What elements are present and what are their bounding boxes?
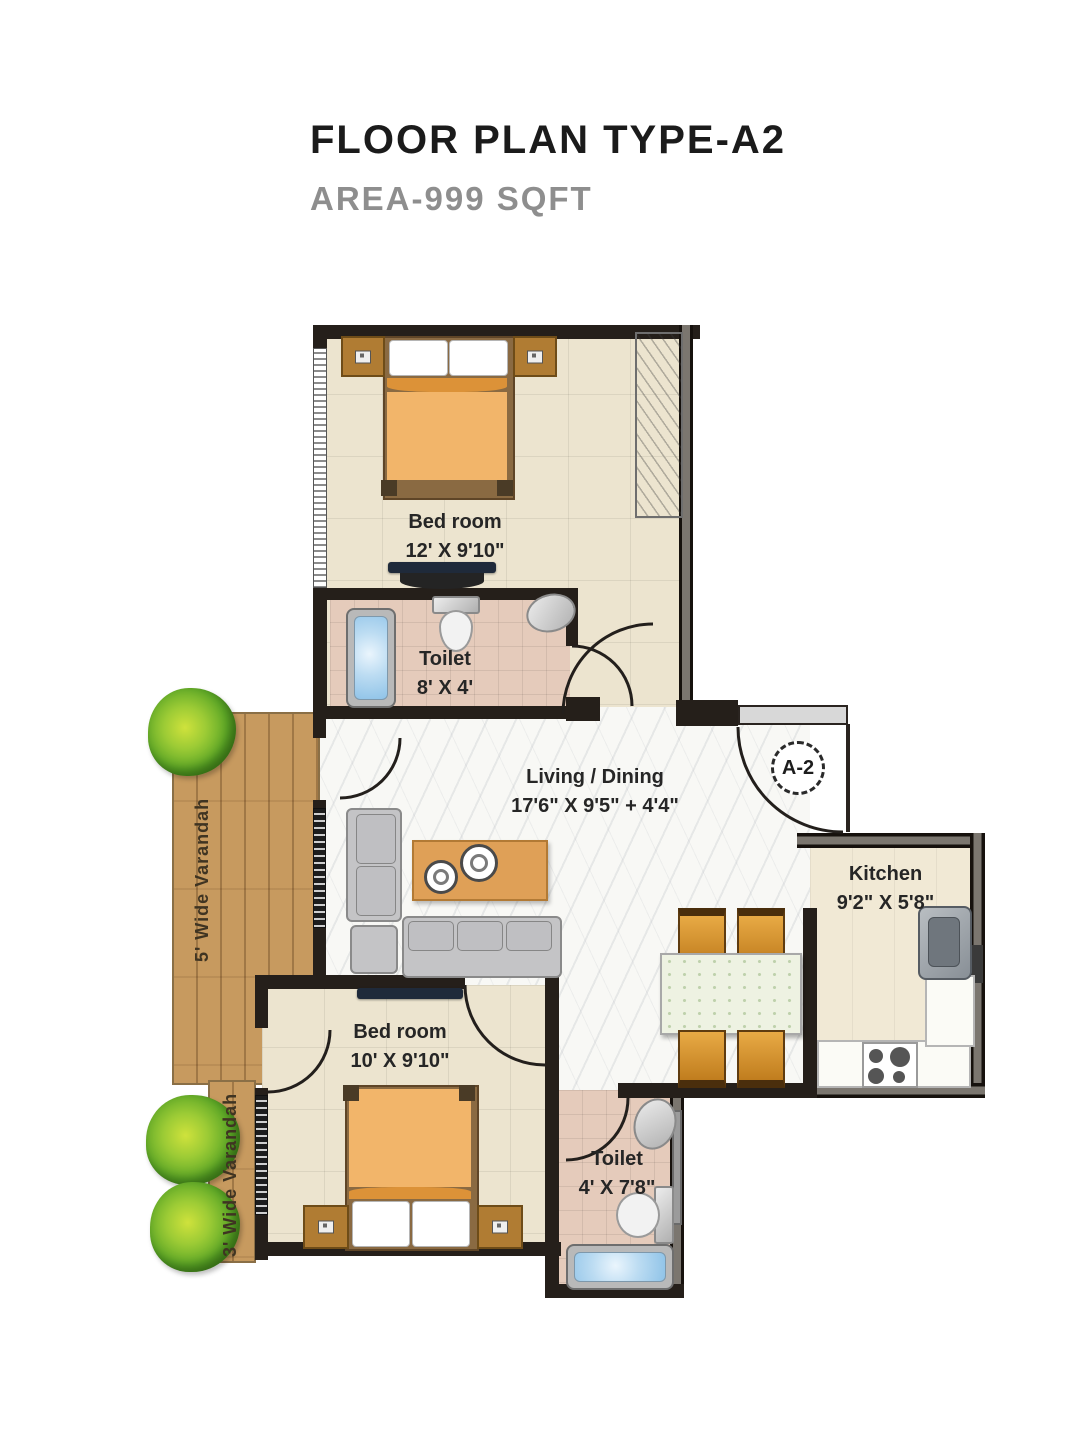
unit-badge-label: A-2 [782, 757, 814, 780]
room-dims: 9'2" X 5'8" [808, 889, 963, 918]
room-dims: 8' X 4' [385, 674, 505, 703]
room-label-kitchen: Kitchen 9'2" X 5'8" [808, 860, 963, 918]
unit-badge: A-2 [771, 741, 825, 795]
door-arc-verandah [340, 738, 400, 798]
room-dims: 17'6" X 9'5" + 4'4" [470, 792, 720, 821]
room-label-toilet-top: Toilet 8' X 4' [385, 645, 505, 703]
room-name: Living / Dining [470, 763, 720, 792]
door-swing-arcs [0, 0, 1080, 1440]
door-arc-toilet-top [572, 646, 632, 706]
floor-plan-page: FLOOR PLAN TYPE-A2 AREA-999 SQFT [0, 0, 1080, 1440]
room-dims: 4' X 7'8" [562, 1174, 672, 1203]
verandah-wide-label: 5' Wide Varandah [192, 785, 213, 975]
room-name: Toilet [562, 1145, 672, 1174]
room-dims: 12' X 9'10" [355, 537, 555, 566]
room-label-bedroom-bottom: Bed room 10' X 9'10" [300, 1018, 500, 1076]
verandah-narrow-label: 3' Wide Varandah [220, 1090, 241, 1260]
room-label-living-dining: Living / Dining 17'6" X 9'5" + 4'4" [470, 763, 720, 821]
room-name: Toilet [385, 645, 505, 674]
room-dims: 10' X 9'10" [300, 1047, 500, 1076]
room-name: Bed room [300, 1018, 500, 1047]
room-label-toilet-bottom: Toilet 4' X 7'8" [562, 1145, 672, 1203]
floor-plan: Bed room 12' X 9'10" Toilet 8' X 4' Livi… [0, 0, 1080, 1440]
room-label-bedroom-top: Bed room 12' X 9'10" [355, 508, 555, 566]
room-name: Bed room [355, 508, 555, 537]
room-name: Kitchen [808, 860, 963, 889]
door-arc-bedroom-top [563, 624, 653, 714]
